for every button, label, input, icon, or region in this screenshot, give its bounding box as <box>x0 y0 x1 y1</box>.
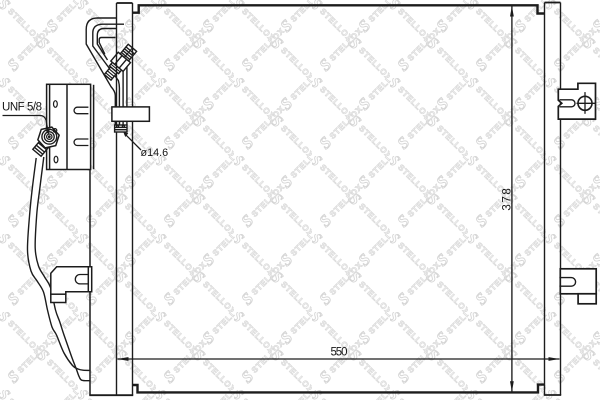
svg-text:UNF 5/8: UNF 5/8 <box>2 102 42 114</box>
svg-text:378: 378 <box>501 187 513 211</box>
svg-text:550: 550 <box>331 347 348 359</box>
svg-text:ø14.6: ø14.6 <box>141 147 169 159</box>
